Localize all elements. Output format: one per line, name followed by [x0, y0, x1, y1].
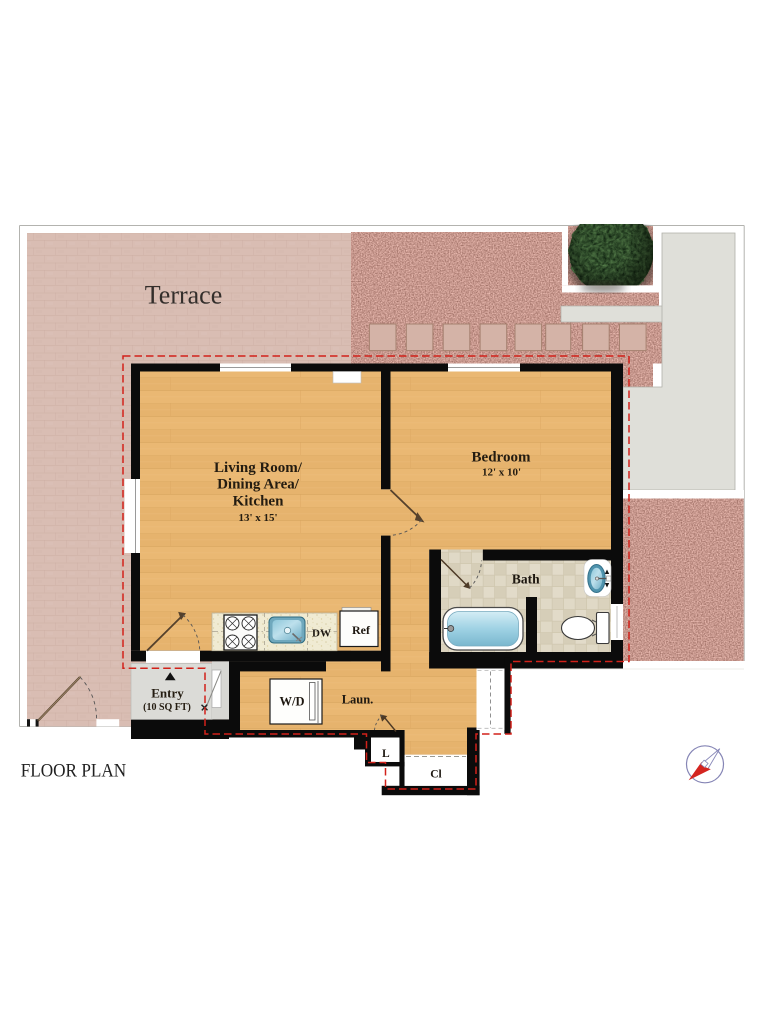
svg-text:Entry: Entry [151, 686, 184, 701]
svg-text:(10 SQ FT): (10 SQ FT) [143, 702, 191, 713]
svg-text:Terrace: Terrace [145, 281, 223, 310]
svg-text:Dining Area/: Dining Area/ [217, 477, 300, 493]
svg-text:Living Room/: Living Room/ [214, 460, 303, 476]
svg-text:FLOOR PLAN: FLOOR PLAN [21, 761, 127, 782]
svg-text:12' x 10': 12' x 10' [482, 466, 521, 478]
svg-text:Kitchen: Kitchen [233, 494, 284, 510]
svg-text:13' x 15': 13' x 15' [238, 512, 277, 524]
svg-text:DW: DW [312, 628, 331, 640]
svg-text:Bedroom: Bedroom [472, 450, 531, 466]
svg-text:Bath: Bath [512, 572, 540, 587]
svg-text:Cl: Cl [430, 769, 442, 781]
svg-text:W/D: W/D [280, 695, 305, 709]
svg-text:L: L [382, 748, 390, 760]
svg-text:Laun.: Laun. [342, 693, 374, 707]
svg-text:Ref: Ref [352, 623, 371, 637]
